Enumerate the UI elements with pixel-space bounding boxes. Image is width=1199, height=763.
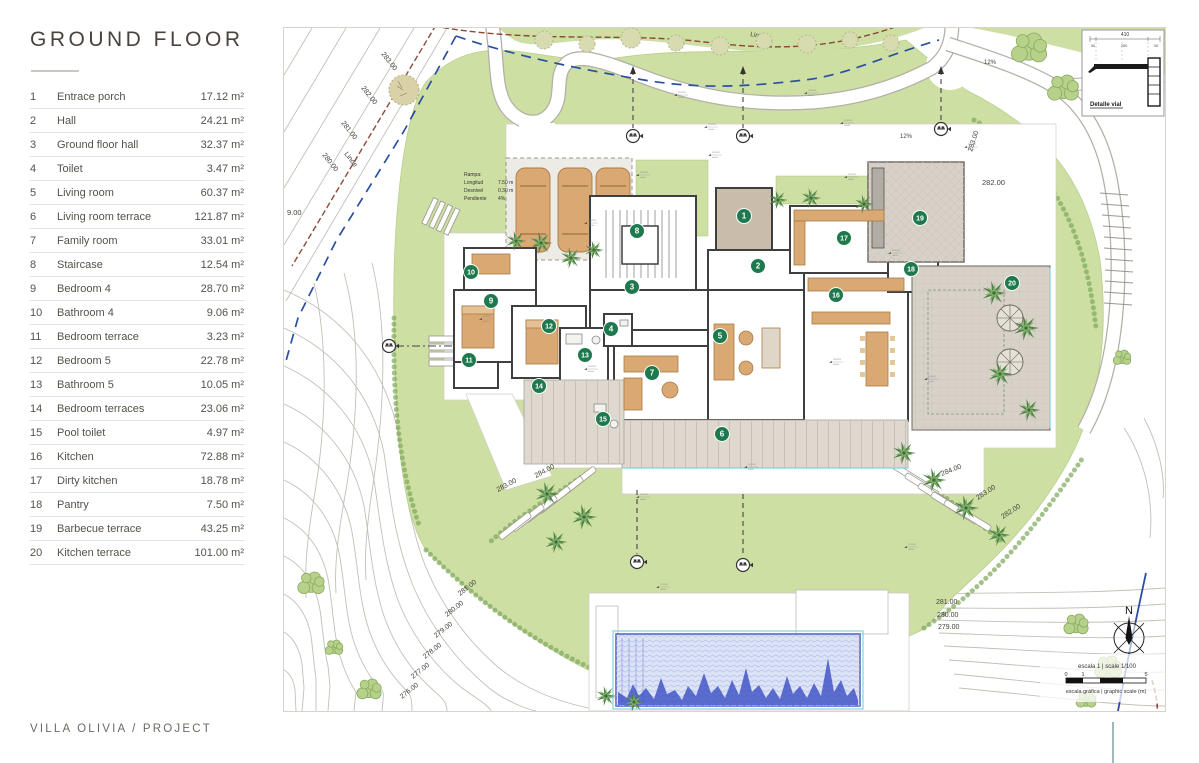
room-marker: 16	[829, 288, 844, 303]
svg-text:3: 3	[630, 283, 635, 292]
svg-text:Rampa:: Rampa:	[464, 172, 482, 178]
room-marker: 2	[751, 259, 766, 274]
room-name: Bedroom terraces	[57, 403, 201, 415]
svg-text:7.50 m: 7.50 m	[498, 180, 513, 186]
room-area: 24.21 m²	[201, 115, 244, 127]
room-number: 12	[30, 355, 57, 367]
room-marker: 18	[904, 262, 919, 277]
linde-label: Linde	[342, 151, 358, 169]
room-marker: 3	[625, 280, 640, 295]
legend-row: 3Ground floor hall32.37 m²	[30, 133, 244, 157]
contour-label: 280.00	[320, 152, 339, 173]
room-number: 1	[30, 91, 57, 103]
bush-icon	[325, 640, 343, 654]
room-area: 10.05 m²	[201, 379, 244, 391]
legend-row: 5Living room60.37 m²	[30, 181, 244, 205]
olive-tree-icon	[535, 31, 553, 49]
room-name: Barbecue terrace	[57, 523, 201, 535]
svg-text:5: 5	[718, 332, 723, 341]
room-area: 43.25 m²	[201, 523, 244, 535]
svg-text:1: 1	[1081, 672, 1084, 678]
room-name: Kitchen	[57, 451, 201, 463]
contour-label: 278.00	[422, 642, 443, 661]
project-footer: VILLA OLIVIA / PROJECT	[30, 723, 212, 735]
svg-text:30: 30	[1091, 43, 1096, 48]
contour-label: 282.00	[982, 178, 1005, 187]
room-number: 13	[30, 379, 57, 391]
svg-text:2: 2	[756, 262, 761, 271]
room-marker: 17	[837, 231, 852, 246]
room-number: 11	[30, 331, 57, 343]
svg-text:0: 0	[1064, 672, 1067, 678]
room-area: 32.37 m²	[201, 139, 244, 151]
corner-rule	[1112, 722, 1114, 763]
room-area: 72.88 m²	[201, 451, 244, 463]
room-name: Dirty kitchen	[57, 475, 201, 487]
room-marker: 10	[464, 265, 479, 280]
svg-text:Pendiente: Pendiente	[464, 196, 487, 202]
legend-row: 1Entrace porch17.12 m²	[30, 85, 244, 109]
room-area: 12.54 m²	[201, 259, 244, 271]
svg-text:8: 8	[635, 227, 640, 236]
contour-label: 281.00	[339, 120, 358, 141]
room-name: Bedroom 5	[57, 355, 201, 367]
svg-text:12: 12	[545, 324, 553, 331]
svg-text:11: 11	[465, 358, 473, 365]
title-divider	[31, 70, 79, 72]
room-marker: 14	[532, 379, 547, 394]
legend-row: 13Bathroom 510.05 m²	[30, 373, 244, 397]
legend-row: 10Bathroom 49.06 m²	[30, 301, 244, 325]
legend-row: 16Kitchen72.88 m²	[30, 445, 244, 469]
svg-text:N: N	[1125, 605, 1133, 617]
legend-row: 6Living room terrace121.87 m²	[30, 205, 244, 229]
room-marker: 12	[542, 319, 557, 334]
olive-tree-icon	[756, 33, 772, 49]
svg-text:410: 410	[1121, 32, 1130, 38]
room-number: 20	[30, 547, 57, 559]
room-name: Living room terrace	[57, 211, 194, 223]
bush-icon	[357, 679, 381, 699]
contour-label: 281.00	[936, 599, 958, 606]
olive-tree-icon	[842, 32, 858, 48]
svg-text:19: 19	[916, 216, 924, 223]
svg-text:13: 13	[581, 353, 589, 360]
room-name: Bedroom 4	[57, 283, 201, 295]
slope-label: 12%	[900, 134, 913, 140]
north-arrow: N	[1114, 605, 1144, 653]
room-number: 3	[30, 139, 57, 151]
svg-text:escala 1 | scale 1/100: escala 1 | scale 1/100	[1078, 664, 1137, 670]
legend-row: 17Dirty kitchen18.78 m²	[30, 469, 244, 493]
room-area: 121.87 m²	[194, 211, 244, 223]
legend-row: 14Bedroom terraces23.06 m²	[30, 397, 244, 421]
room-number: 14	[30, 403, 57, 415]
room-marker: 20	[1005, 276, 1020, 291]
room-legend: 1Entrace porch17.12 m²2Hall24.21 m²3Grou…	[30, 85, 244, 565]
room-area: 7.50 m²	[207, 499, 244, 511]
olive-tree-icon	[668, 35, 684, 51]
contour-label: 276.00	[399, 682, 420, 701]
svg-text:Detalle vial: Detalle vial	[1090, 102, 1122, 108]
svg-text:1: 1	[742, 212, 747, 221]
bush-icon	[1064, 614, 1088, 634]
olive-tree-icon	[798, 35, 816, 53]
room-name: Kitchen terrace	[57, 547, 194, 559]
room-area: 101.00 m²	[194, 547, 244, 559]
svg-text:20: 20	[1008, 281, 1016, 288]
legend-row: 12Bedroom 522.78 m²	[30, 349, 244, 373]
svg-text:18: 18	[907, 267, 915, 274]
room-name: Toilet	[57, 163, 207, 175]
room-number: 8	[30, 259, 57, 271]
room-name: Bathroom 4	[57, 307, 207, 319]
svg-text:9: 9	[489, 297, 494, 306]
room-name: Pantry	[57, 499, 207, 511]
svg-text:Desnivel: Desnivel	[464, 188, 483, 194]
scale-bar: escala 1 | scale 1/100 0 1 5 escala gráf…	[1040, 654, 1165, 702]
svg-text:14: 14	[535, 384, 543, 391]
contour-label: 283.00	[379, 51, 398, 72]
site-plan: 410 30 350 30 Detalle vial Rampa: Longit…	[283, 27, 1166, 712]
room-area: 33.01 m²	[201, 235, 244, 247]
room-number: 6	[30, 211, 57, 223]
room-number: 9	[30, 283, 57, 295]
bush-icon	[1113, 350, 1131, 364]
room-number: 17	[30, 475, 57, 487]
room-name: Family room	[57, 235, 201, 247]
svg-text:4: 4	[609, 325, 614, 334]
room-number: 15	[30, 427, 57, 439]
room-marker: 4	[604, 322, 619, 337]
svg-text:6: 6	[720, 430, 725, 439]
room-area: 23.06 m²	[201, 403, 244, 415]
room-area: 3.47 m²	[207, 163, 244, 175]
svg-text:Longitud: Longitud	[464, 180, 483, 186]
olive-tree-icon	[711, 37, 729, 55]
legend-row: 18Pantry7.50 m²	[30, 493, 244, 517]
room-marker: 11	[462, 353, 477, 368]
svg-text:30: 30	[1154, 43, 1159, 48]
room-marker: 6	[715, 427, 730, 442]
olive-tree-large-icon	[389, 75, 419, 105]
room-area: 9.06 m²	[207, 307, 244, 319]
room-marker: 1	[737, 209, 752, 224]
room-area: 17.12 m²	[201, 91, 244, 103]
room-area: 22.78 m²	[201, 355, 244, 367]
room-number: 4	[30, 163, 57, 175]
room-name: Pool toilet	[57, 427, 207, 439]
room-area: 4.97 m²	[207, 427, 244, 439]
room-number: 2	[30, 115, 57, 127]
room-number: 7	[30, 235, 57, 247]
legend-row: 15Pool toilet4.97 m²	[30, 421, 244, 445]
room-marker: 19	[913, 211, 928, 226]
svg-text:0.30 m: 0.30 m	[498, 188, 513, 194]
room-area: 60.37 m²	[201, 187, 244, 199]
plan-sheet: GROUND FLOOR 1Entrace porch17.12 m²2Hall…	[0, 0, 1199, 763]
room-name: Hall	[57, 115, 201, 127]
room-number: 10	[30, 307, 57, 319]
page-title: GROUND FLOOR	[30, 28, 244, 52]
svg-text:15: 15	[599, 417, 607, 424]
legend-row: 20Kitchen terrace101.00 m²	[30, 541, 244, 565]
room-marker: 5	[713, 329, 728, 344]
room-number: 19	[30, 523, 57, 535]
svg-text:10: 10	[467, 270, 475, 277]
olive-tree-icon	[621, 28, 641, 48]
room-number: 16	[30, 451, 57, 463]
svg-text:7: 7	[650, 369, 655, 378]
legend-row: 4Toilet3.47 m²	[30, 157, 244, 181]
svg-text:16: 16	[832, 293, 840, 300]
svg-text:escala gráfica | graphic scale: escala gráfica | graphic scale (m)	[1066, 689, 1147, 695]
contour-label: 279.00	[433, 621, 454, 640]
room-number: 5	[30, 187, 57, 199]
svg-text:17: 17	[840, 236, 848, 243]
contour-label: 280.00	[444, 600, 465, 619]
contour-label: 279.00	[938, 624, 960, 631]
olive-tree-icon	[579, 36, 595, 52]
room-name: Living room	[57, 187, 201, 199]
room-marker: 13	[578, 348, 593, 363]
legend-row: 7Family room33.01 m²	[30, 229, 244, 253]
room-area: 28.70 m²	[201, 283, 244, 295]
bush-icon	[1011, 33, 1046, 62]
legend-row: 2Hall24.21 m²	[30, 109, 244, 133]
room-area: 3.23 m²	[207, 331, 244, 343]
legend-row: 9Bedroom 428.70 m²	[30, 277, 244, 301]
room-name: Bedroom terrace	[57, 331, 207, 343]
legend-row: 8Staircase12.54 m²	[30, 253, 244, 277]
room-marker: 9	[484, 294, 499, 309]
room-kitchen	[804, 273, 908, 421]
room-area: 18.78 m²	[201, 475, 244, 487]
legend-row: 19Barbecue terrace43.25 m²	[30, 517, 244, 541]
bush-icon	[298, 572, 324, 594]
room-marker: 15	[596, 412, 611, 427]
road-detail-inset: 410 30 350 30 Detalle vial	[1082, 30, 1164, 116]
room-name: Entrace porch	[57, 91, 201, 103]
building	[454, 158, 1050, 468]
room-name: Bathroom 5	[57, 379, 201, 391]
olive-tree-icon	[883, 35, 899, 51]
room-bedroom-terrace	[454, 362, 498, 388]
legend-row: 11Bedroom terrace3.23 m²	[30, 325, 244, 349]
contour-label: 280.00	[937, 612, 959, 619]
site-plan-drawing: 410 30 350 30 Detalle vial Rampa: Longit…	[284, 28, 1165, 711]
slope-label: 12%	[984, 60, 997, 66]
room-marker: 7	[645, 366, 660, 381]
svg-text:4%: 4%	[498, 196, 506, 202]
room-name: Ground floor hall	[57, 139, 201, 151]
svg-text:5: 5	[1144, 672, 1147, 678]
room-number: 18	[30, 499, 57, 511]
room-marker: 8	[630, 224, 645, 239]
contour-label: 9.00	[287, 208, 302, 217]
room-name: Staircase	[57, 259, 201, 271]
